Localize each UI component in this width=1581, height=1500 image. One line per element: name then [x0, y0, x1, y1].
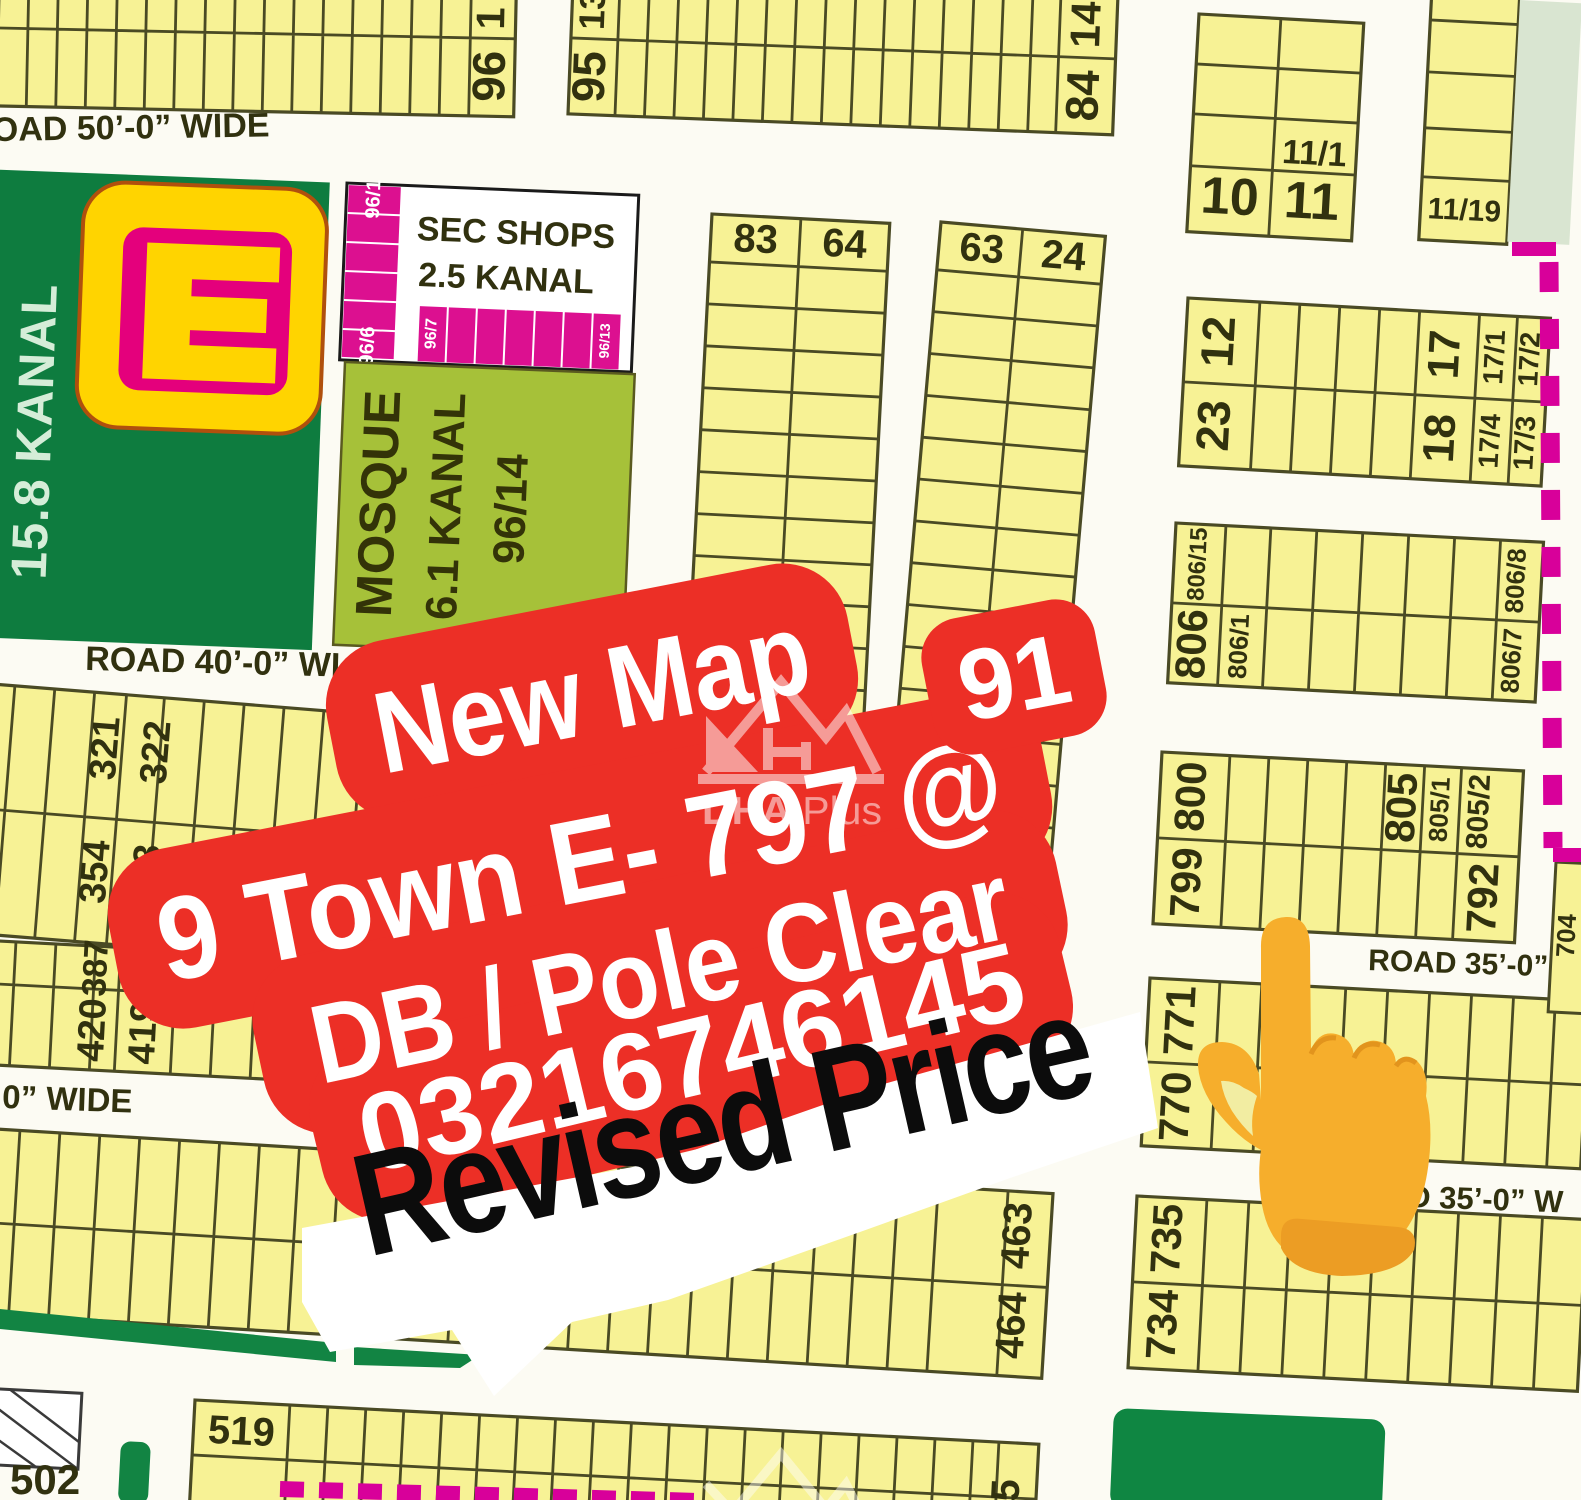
svg-text:735: 735 [1141, 1202, 1192, 1274]
svg-text:6.1 KANAL: 6.1 KANAL [417, 392, 475, 621]
svg-text:18: 18 [1414, 412, 1466, 464]
svg-text:91: 91 [949, 612, 1080, 743]
svg-text:96/7: 96/7 [422, 318, 440, 350]
svg-text:805/1: 805/1 [1423, 776, 1456, 843]
svg-text:ROAD 35’-0”: ROAD 35’-0” [1368, 944, 1549, 983]
svg-text:321: 321 [82, 715, 129, 782]
svg-text:806/8: 806/8 [1499, 548, 1532, 615]
svg-text:387: 387 [75, 939, 116, 998]
svg-text:84: 84 [1055, 69, 1109, 123]
svg-text:11/19: 11/19 [1427, 192, 1502, 229]
svg-text:95: 95 [562, 50, 616, 103]
svg-text:11: 11 [1283, 171, 1341, 232]
svg-text:ROAD 40’-0” WI: ROAD 40’-0” WI [85, 640, 341, 685]
svg-text:420: 420 [70, 997, 115, 1063]
svg-text:704: 704 [1550, 913, 1581, 958]
svg-text:463: 463 [993, 1201, 1041, 1270]
svg-text:96: 96 [462, 50, 515, 102]
svg-text:535: 535 [981, 1478, 1028, 1500]
svg-text:771: 771 [1154, 984, 1205, 1056]
svg-text:770: 770 [1150, 1070, 1201, 1142]
svg-text:17/3: 17/3 [1507, 415, 1541, 471]
svg-text:96/1: 96/1 [362, 179, 386, 219]
svg-text:806/1: 806/1 [1222, 613, 1255, 680]
svg-text:OAD 50’-0” WIDE: OAD 50’-0” WIDE [0, 106, 270, 149]
svg-text:MOSQUE: MOSQUE [345, 389, 411, 618]
svg-text:806: 806 [1166, 608, 1217, 680]
svg-text:11/1: 11/1 [1281, 133, 1347, 175]
svg-text:0” WIDE: 0” WIDE [2, 1078, 133, 1120]
svg-text:1: 1 [469, 7, 513, 30]
svg-text:63: 63 [958, 225, 1006, 273]
svg-text:96/6: 96/6 [356, 326, 380, 366]
svg-text:502: 502 [10, 1456, 80, 1500]
svg-text:17/4: 17/4 [1472, 413, 1506, 470]
svg-text:734: 734 [1137, 1288, 1188, 1361]
svg-text:806/7: 806/7 [1494, 627, 1527, 694]
svg-text:800: 800 [1165, 760, 1216, 832]
svg-text:10: 10 [1199, 166, 1260, 227]
svg-text:12: 12 [1190, 315, 1245, 369]
svg-text:805: 805 [1376, 771, 1427, 843]
svg-text:799: 799 [1160, 846, 1211, 918]
svg-text:13: 13 [571, 0, 614, 31]
svg-text:464: 464 [987, 1290, 1035, 1360]
svg-text:96/13: 96/13 [596, 323, 613, 359]
svg-text:24: 24 [1039, 232, 1088, 280]
svg-text:17: 17 [1419, 329, 1471, 381]
svg-text:DHA.Plus: DHA.Plus [702, 790, 882, 833]
svg-text:792: 792 [1457, 862, 1508, 934]
svg-text:322: 322 [133, 719, 180, 786]
svg-text:23: 23 [1186, 399, 1241, 453]
svg-text:806/15: 806/15 [1182, 527, 1213, 602]
svg-text:14: 14 [1061, 0, 1110, 49]
svg-text:519: 519 [207, 1408, 276, 1455]
svg-text:805/2: 805/2 [1460, 773, 1497, 850]
svg-text:64: 64 [821, 221, 868, 267]
svg-text:83: 83 [732, 216, 779, 262]
svg-text:17/1: 17/1 [1477, 329, 1511, 385]
svg-text:96/14: 96/14 [484, 453, 538, 566]
svg-text:2.5 KANAL: 2.5 KANAL [418, 256, 595, 301]
svg-text:15.8 KANAL: 15.8 KANAL [1, 282, 68, 580]
